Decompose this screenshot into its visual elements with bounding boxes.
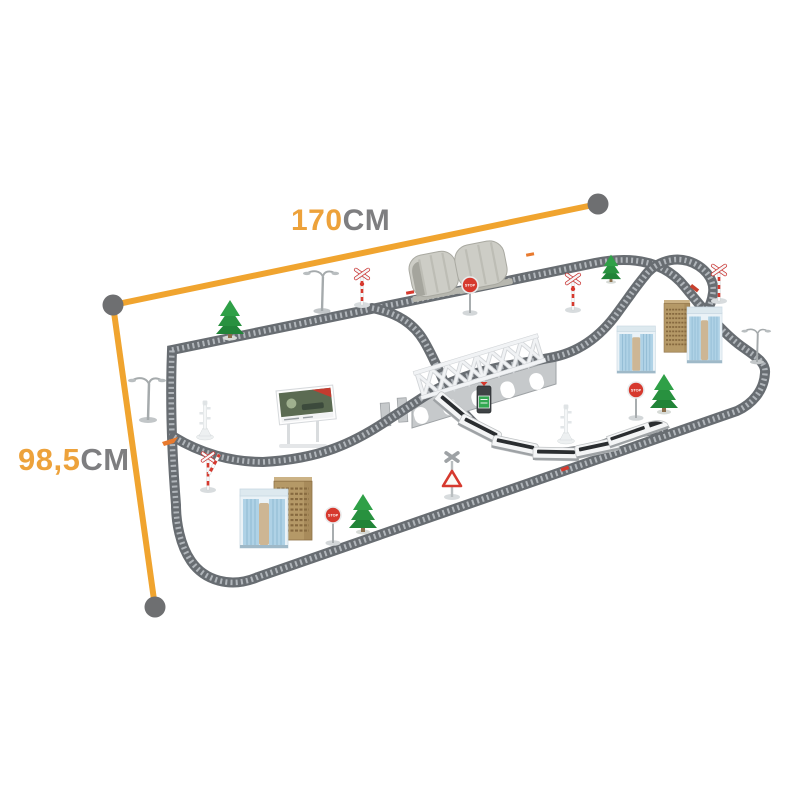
width-value: 170 [291,204,343,237]
depth-unit: CM [80,442,129,477]
skyscraper-blue [240,489,288,548]
dimension-endpoint-dot [145,597,166,618]
stop-sign-text: STOP [328,513,339,517]
crossing-signal-with-barrier [200,451,221,493]
signal-tower [197,401,214,441]
tree [650,374,678,415]
skyscraper-group-left [240,477,312,548]
train-car [533,447,579,461]
tunnel [405,238,514,303]
skyscraper-brown [664,300,690,352]
product-image: STOP STOP STOP [0,0,800,800]
width-dimension-label: 170CM [291,206,390,236]
train-car [491,435,539,457]
skyscraper-blue [687,307,722,363]
stop-sign-text: STOP [631,388,642,392]
stop-sign-text: STOP [465,283,476,287]
skyscraper-blue [617,326,655,373]
dimension-lines [103,194,609,618]
crossing-signal [354,268,371,308]
skyscraper-group-right [617,300,722,373]
billboard [276,385,336,448]
depth-dimension-label: 98,5CM [18,444,130,475]
crossing-signal [565,273,582,313]
billboard-base [279,444,327,448]
red-switch-marker [406,290,414,294]
stop-sign: STOP [325,507,341,546]
dimension-endpoint-dot [588,194,609,215]
tree [349,494,377,535]
stop-sign: STOP [628,382,644,421]
stop-sign: STOP [462,277,478,316]
street-lamp [303,271,339,314]
width-unit: CM [343,204,391,237]
control-box [477,382,491,413]
street-lamp [128,378,166,423]
crossing-signal-with-warning-triangle [443,450,461,500]
depth-value: 98,5 [18,442,80,477]
billboard-panel [276,385,336,425]
scene-graphic: STOP STOP STOP [0,0,800,800]
orange-switch-marker [526,252,534,256]
signal-tower [558,405,575,445]
dimension-endpoint-dot [103,295,124,316]
